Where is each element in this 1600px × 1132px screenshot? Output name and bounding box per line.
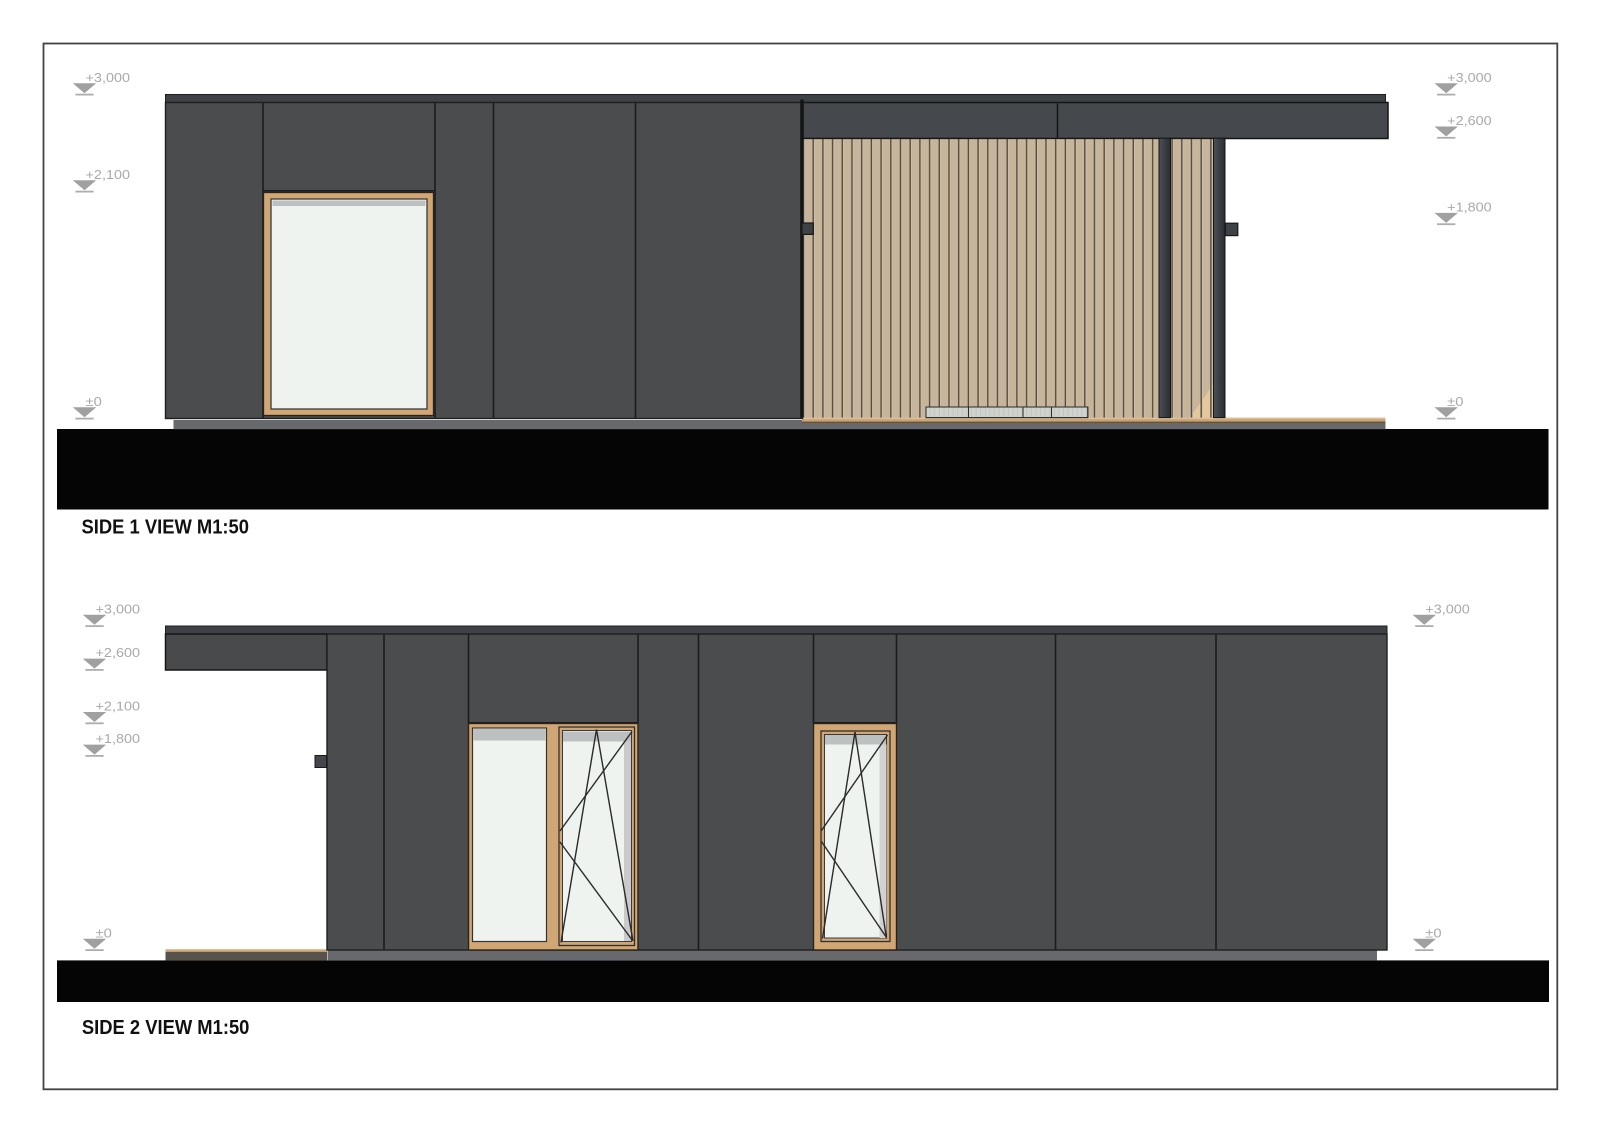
svg-text:SIDE 1 VIEW M1:50: SIDE 1 VIEW M1:50 (82, 516, 250, 538)
svg-text:±0: ±0 (1447, 394, 1463, 409)
svg-text:+2,600: +2,600 (96, 645, 141, 660)
svg-text:±0: ±0 (86, 394, 102, 409)
svg-text:+3,000: +3,000 (86, 70, 131, 85)
svg-text:+2,100: +2,100 (86, 167, 131, 182)
svg-text:+2,600: +2,600 (1447, 113, 1492, 128)
svg-text:+3,000: +3,000 (96, 601, 141, 616)
svg-text:+1,800: +1,800 (96, 731, 141, 746)
svg-text:SIDE 2 VIEW M1:50: SIDE 2 VIEW M1:50 (82, 1017, 250, 1039)
svg-text:+3,000: +3,000 (1425, 601, 1470, 616)
svg-text:+2,100: +2,100 (96, 699, 141, 714)
svg-text:±0: ±0 (96, 925, 112, 940)
svg-text:+3,000: +3,000 (1447, 70, 1492, 85)
svg-text:+1,800: +1,800 (1447, 200, 1492, 215)
svg-text:±0: ±0 (1425, 925, 1441, 940)
